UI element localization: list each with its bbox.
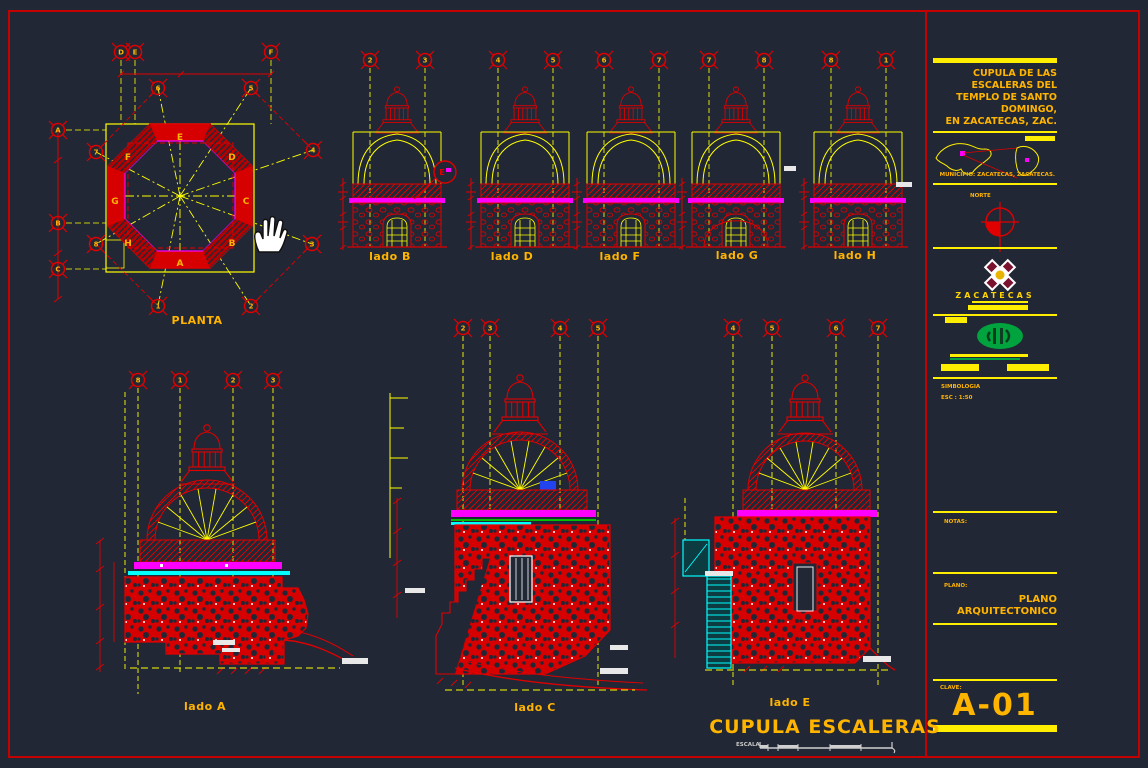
dimension-label-chip: [863, 656, 891, 662]
svg-text:8: 8: [136, 377, 141, 385]
svg-text:5: 5: [551, 57, 556, 65]
plano-value: PLANO ARQUITECTONICO: [933, 594, 1057, 618]
svg-text:4: 4: [311, 147, 316, 155]
svg-text:A: A: [55, 127, 61, 135]
svg-text:3: 3: [310, 241, 315, 249]
titleblock-divider: [925, 10, 927, 758]
section-label-e: lado E: [770, 696, 811, 709]
svg-text:7: 7: [707, 57, 712, 65]
plano-label: PLANO:: [944, 583, 967, 589]
titleblock-rule: [933, 725, 1057, 732]
svg-text:1: 1: [156, 303, 161, 311]
titleblock-rule: [933, 511, 1057, 513]
svg-text:E: E: [439, 168, 444, 177]
graphic-scale-bar: [758, 740, 898, 754]
svg-text:7: 7: [94, 149, 99, 157]
elevation-label-h: lado H: [834, 249, 877, 262]
svg-text:8: 8: [94, 241, 99, 249]
titleblock-rule: [1007, 364, 1049, 371]
svg-text:2: 2: [461, 325, 466, 333]
titleblock-rule: [933, 131, 1057, 133]
cad-drawing-canvas[interactable]: A B C D E F G H D E F A B C 1 2 3 4 5 6 …: [0, 0, 1148, 768]
titleblock-rule: [933, 679, 1057, 681]
svg-text:4: 4: [496, 57, 501, 65]
scalebar-label: ESCALA: [736, 742, 760, 748]
hand-cursor: [252, 212, 292, 256]
plan-grid-bubbles: D E F A B C 1 2 3 4 5 6 7 8: [49, 43, 322, 315]
dimension-label-chip: [610, 645, 628, 650]
elevation-lado-g: 7 8: [676, 50, 796, 260]
svg-text:1: 1: [884, 57, 889, 65]
institution-logo: [976, 322, 1024, 350]
svg-text:8: 8: [762, 57, 767, 65]
svg-text:4: 4: [731, 325, 736, 333]
svg-text:5: 5: [249, 85, 254, 93]
titleblock-rule: [941, 364, 979, 371]
svg-text:2: 2: [231, 377, 236, 385]
svg-text:C: C: [55, 266, 60, 274]
section-lado-a: 8 1 2 3: [65, 372, 365, 707]
titleblock-rule: [933, 314, 1057, 316]
svg-text:5: 5: [596, 325, 601, 333]
plan-title: PLANTA: [172, 314, 223, 327]
simbologia-label: SIMBOLOGIA: [941, 384, 980, 390]
dimension-label-chip: [213, 640, 235, 645]
svg-text:6: 6: [602, 57, 607, 65]
notas-label: NOTAS:: [944, 519, 967, 525]
plan-view-drawing: A B C D E F G H D E F A B C 1 2 3 4 5 6 …: [28, 30, 328, 330]
dimension-label-chip: [342, 658, 368, 664]
elevation-label-b: lado B: [369, 250, 411, 263]
plan-side-g: G: [111, 197, 118, 207]
north-arrow-compass: [975, 196, 1025, 254]
svg-text:E: E: [133, 49, 138, 57]
svg-text:8: 8: [829, 57, 834, 65]
plan-side-b: B: [229, 239, 236, 249]
svg-text:B: B: [55, 220, 60, 228]
svg-text:6: 6: [834, 325, 839, 333]
titleblock-rule: [933, 247, 1057, 249]
section-lado-e: 4 5 6 7: [655, 318, 910, 713]
dimension-label-chip: [405, 588, 425, 593]
elevation-label-d: lado D: [491, 250, 534, 263]
titleblock-rule: [933, 58, 1057, 63]
estado-label: ZACATECAS: [933, 291, 1057, 300]
svg-text:6: 6: [156, 85, 161, 93]
titleblock-rule: [933, 572, 1057, 574]
titleblock-rule: [950, 354, 1028, 357]
elevation-lado-f: 6 7: [571, 50, 691, 260]
section-lado-c: 2 3 4 5: [385, 318, 670, 713]
svg-text:2: 2: [368, 57, 373, 65]
plan-side-c: C: [243, 197, 250, 207]
svg-text:5: 5: [770, 325, 775, 333]
elevation-lado-d: 4 5: [465, 50, 585, 260]
svg-text:3: 3: [271, 377, 276, 385]
titleblock-rule-green: [950, 358, 1020, 360]
elevation-label-f: lado F: [600, 250, 641, 263]
svg-text:1: 1: [178, 377, 183, 385]
svg-text:F: F: [269, 49, 274, 57]
section-label-a: lado A: [184, 700, 226, 713]
elevation-label-g: lado G: [716, 249, 758, 262]
titleblock-rule: [945, 317, 967, 323]
elevation-lado-b: 2 3 E: [337, 50, 457, 260]
svg-text:D: D: [118, 49, 124, 57]
escala-note-label: ESC : 1:50: [941, 395, 972, 401]
elevation-lado-h: 8 1: [798, 50, 918, 260]
plan-side-d: D: [228, 153, 235, 163]
project-title: CUPULA DE LAS ESCALERAS DEL TEMPLO DE SA…: [933, 68, 1057, 128]
titleblock-rule: [933, 623, 1057, 625]
municipio-label: MUNICIPIO: ZACATECAS, ZACATECAS.: [933, 172, 1055, 178]
titleblock-rule: [968, 305, 1028, 310]
svg-text:2: 2: [249, 303, 254, 311]
svg-text:3: 3: [488, 325, 493, 333]
dimension-label-chip: [600, 668, 628, 674]
svg-text:3: 3: [423, 57, 428, 65]
plan-side-f: F: [125, 153, 131, 163]
titleblock-rule: [933, 377, 1057, 379]
svg-text:4: 4: [558, 325, 563, 333]
plan-side-e: E: [177, 133, 183, 143]
titleblock-rule: [933, 183, 1057, 185]
sheet-number: A-01: [933, 688, 1057, 723]
plan-side-h: H: [124, 239, 132, 249]
dimension-label-chip: [222, 648, 240, 652]
svg-text:7: 7: [876, 325, 881, 333]
titleblock-rule: [972, 301, 1028, 303]
svg-text:7: 7: [657, 57, 662, 65]
plan-side-a: A: [177, 259, 184, 269]
drawing-title: CUPULA ESCALERAS: [709, 716, 941, 738]
section-label-c: lado C: [514, 701, 556, 714]
